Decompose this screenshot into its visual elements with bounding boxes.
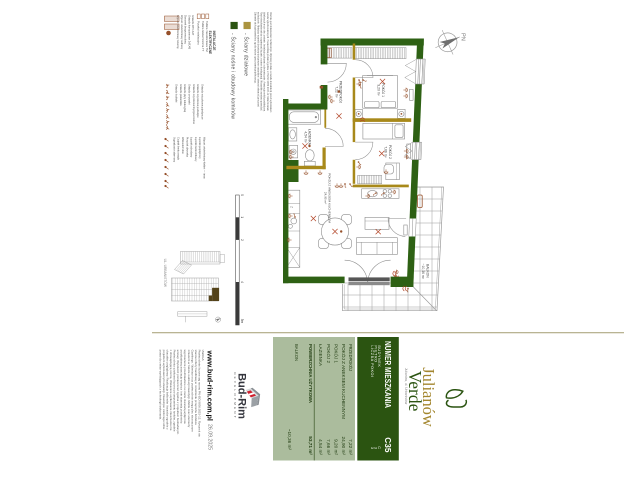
svg-text:UWAGA:: UWAGA: [201, 350, 205, 362]
svg-text:Gniazdo wtyczkowe podwójne: Gniazdo wtyczkowe podwójne [196, 84, 199, 118]
svg-text:przykładową aranżację wnętrza: przykładową aranżację wnętrza i nie stan… [180, 350, 184, 424]
svg-text:PIĘTRO: PIĘTRO [374, 345, 378, 362]
svg-text:Julianów, ul. Urbanistów: Julianów, ul. Urbanistów [404, 368, 408, 405]
svg-text:umowy. Wysokość pomieszczeń zg: umowy. Wysokość pomieszczeń zgodna z pro… [176, 350, 180, 435]
svg-text:0: 0 [240, 194, 244, 196]
svg-text:3: 3 [370, 447, 374, 449]
svg-text:3: 3 [374, 447, 378, 449]
svg-text:Gniazdo komputerowe 2xRJ45: Gniazdo komputerowe 2xRJ45 [187, 15, 190, 50]
svg-text:z obowiązującą normą. Wskazane: z obowiązującą normą. Wskazane usytuowan… [169, 350, 173, 431]
svg-text:7,66 m²: 7,66 m² [384, 146, 388, 158]
svg-text:Wypust oświetleniowy kinkiet —: Wypust oświetleniowy kinkiet — taras [203, 137, 206, 179]
svg-text:7,66 m²: 7,66 m² [326, 439, 331, 455]
svg-text:Gniazdo lodówki: Gniazdo lodówki [174, 84, 177, 103]
svg-text:NUMER MIESZKANIA: NUMER MIESZKANIA [383, 341, 393, 408]
svg-text:Cywilnego. Wymiary oraz powier: Cywilnego. Wymiary oraz powierzchnie mog… [190, 350, 194, 433]
svg-text:charakter poglądowy. Realizacj: charakter poglądowy. Realizacja balkonów… [166, 350, 170, 431]
svg-text:4: 4 [240, 281, 244, 283]
svg-text:C35: C35 [383, 437, 393, 453]
svg-text:1: 1 [240, 216, 244, 218]
svg-text:Łącznik pojedynczy: Łącznik pojedynczy [198, 137, 201, 159]
svg-text:24,90 m²: 24,90 m² [341, 437, 346, 456]
svg-text:~10,36 m²: ~10,36 m² [421, 264, 425, 280]
svg-text:Gniazdo wtyczkowe pojedyncze: Gniazdo wtyczkowe pojedyncze [201, 84, 204, 120]
svg-text:53,71 m²: 53,71 m² [308, 436, 313, 455]
svg-text:Gniazdo zmywarki: Gniazdo zmywarki [187, 84, 190, 105]
svg-text:4,54 m²: 4,54 m² [318, 439, 323, 455]
svg-text:ELEKTRYCZNE: ELEKTRYCZNE [208, 31, 212, 54]
svg-text:INSTALACJE: INSTALACJE [212, 31, 216, 51]
svg-text:7,22 m²: 7,22 m² [334, 86, 338, 98]
svg-text:PN: PN [460, 33, 466, 41]
svg-text:prawo do zmian wynikających z: prawo do zmian wynikających z technologi… [158, 350, 162, 421]
svg-text:Łącznik schodowy: Łącznik schodowy [190, 137, 193, 158]
svg-text:wyposażenia przedstawione na r: wyposażenia przedstawione na rzucie stan… [183, 350, 187, 425]
svg-text:Gniazdo piekarnika: Gniazdo piekarnika [179, 84, 182, 106]
svg-text:~10,36 m²: ~10,36 m² [287, 429, 292, 451]
svg-text:www.bud-rim.com.pl: www.bud-rim.com.pl [206, 350, 215, 421]
svg-text:zmianom w trakcie realizacji i: zmianom w trakcie realizacji inwestycji.… [187, 350, 191, 428]
svg-text:9,20 m²: 9,20 m² [333, 439, 338, 455]
svg-text:ŁAZIENKA: ŁAZIENKA [308, 129, 312, 146]
svg-text:Gniazdo płyty indukcyjnej: Gniazdo płyty indukcyjnej [183, 84, 186, 113]
svg-text:Gniazdo RTV-SAT: Gniazdo RTV-SAT [191, 15, 194, 36]
svg-text:LICZBA POKOI: LICZBA POKOI [370, 345, 374, 377]
svg-text:24,90 m²: 24,90 m² [323, 192, 327, 204]
svg-text:Gniazdo wtyczkowe bryzgoszczel: Gniazdo wtyczkowe bryzgoszczelne [192, 84, 195, 125]
svg-text:Bud-Rim: Bud-Rim [236, 373, 248, 419]
svg-text:4,54 m²: 4,54 m² [304, 131, 308, 143]
svg-text:Przycisk dzwonka: Przycisk dzwonka [185, 137, 188, 157]
svg-text:Dzwonek bezprzewodowy: Dzwonek bezprzewodowy [184, 15, 187, 45]
svg-text:2: 2 [240, 239, 244, 241]
svg-text:projektem wykonawczym elewacji: projektem wykonawczym elewacji. Dewelope… [162, 350, 166, 430]
svg-text:DEVELOPMENT: DEVELOPMENT [233, 372, 237, 420]
svg-text:Łącznik świecznikowy: Łącznik świecznikowy [194, 137, 197, 162]
svg-text:Wideodomofon: Wideodomofon [181, 137, 184, 154]
svg-text:Wypust oświetleniowy sufitowy: Wypust oświetleniowy sufitowy [180, 15, 183, 50]
svg-text:Powierzchnia użytkowa liczona: Powierzchnia użytkowa liczona po wyprawi… [173, 350, 177, 432]
svg-text:ŁAZIENKA: ŁAZIENKA [318, 344, 323, 367]
svg-text:BALKON: BALKON [294, 344, 299, 361]
svg-text:7,22 m²: 7,22 m² [348, 439, 353, 455]
svg-text:stanowi oferty handlowej w roz: stanowi oferty handlowej w rozumieniu pr… [194, 350, 198, 426]
svg-text:9,20 m²: 9,20 m² [377, 84, 381, 96]
svg-text:C: C [377, 446, 381, 449]
svg-text:Czujnik tlenku węgla: Czujnik tlenku węgla [177, 137, 180, 160]
svg-text:BALKON: BALKON [426, 264, 430, 278]
svg-text:26.09.2025: 26.09.2025 [207, 424, 213, 450]
svg-text:Sygnalizator alarmowy: Sygnalizator alarmowy [172, 137, 175, 163]
svg-text:Verde: Verde [405, 371, 425, 412]
svg-text:5m: 5m [240, 319, 244, 324]
svg-text:Powierzchnie liczone wg normy: Powierzchnie liczone wg normy PN-ISO 983… [197, 350, 201, 438]
svg-text:BUDYNEK: BUDYNEK [377, 345, 381, 367]
